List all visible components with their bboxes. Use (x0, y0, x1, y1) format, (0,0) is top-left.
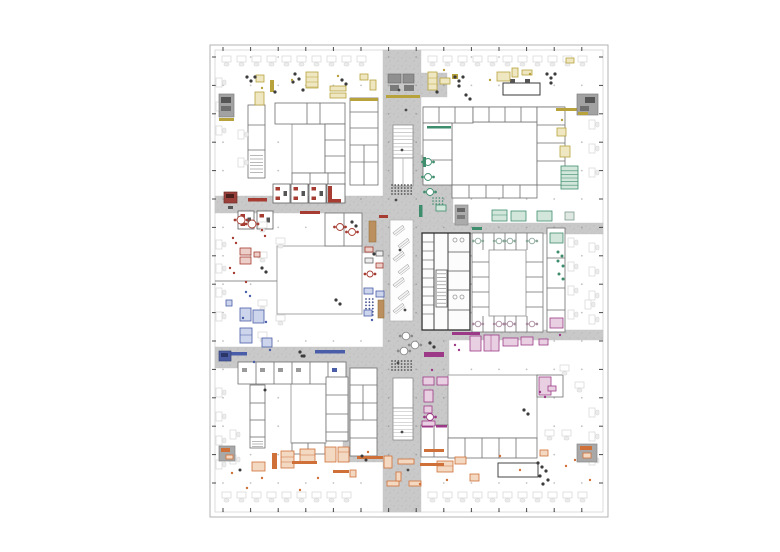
chair (260, 368, 265, 372)
ghost-desk (258, 222, 267, 228)
round-table-chair (432, 161, 435, 164)
ghost-desk (545, 430, 554, 436)
dot-table (401, 366, 403, 368)
ghost-desk (589, 315, 595, 324)
seat (376, 263, 383, 268)
plant-dots (253, 75, 256, 78)
ghost-desk-chair (237, 457, 240, 462)
dot-table (394, 184, 396, 186)
column-grid-dot (277, 454, 279, 456)
dot-table (407, 190, 409, 192)
column-grid-dot (277, 397, 279, 399)
chair (525, 79, 530, 83)
ghost-desk (548, 56, 557, 62)
ghost-desk-chair (575, 312, 578, 317)
plant-dots (264, 270, 267, 273)
booth (470, 336, 481, 351)
round-table (427, 414, 434, 421)
service-unit (583, 453, 591, 458)
round-table-chair (397, 350, 400, 353)
round-table (529, 238, 535, 244)
column-grid-dot (553, 369, 555, 371)
ghost-desk-chair (430, 63, 435, 66)
dot-table (372, 301, 374, 303)
ghost-desk (297, 492, 306, 498)
accent-dots (242, 317, 244, 319)
bench (396, 472, 401, 481)
ghost-desk-chair (592, 302, 595, 307)
dot-table (365, 301, 367, 303)
ghost-desk (327, 492, 336, 498)
pantry-unit (404, 85, 414, 91)
dot-table (401, 369, 403, 371)
dot-table (398, 369, 400, 371)
dot-table (407, 369, 409, 371)
column-grid-dot (526, 369, 528, 371)
plant-dots (401, 431, 404, 434)
dot-table (407, 187, 409, 189)
plant-dots (435, 90, 438, 93)
dot-table (394, 190, 396, 192)
column-grid-dot (277, 56, 279, 58)
ghost-desk-chair (223, 266, 226, 271)
round-table-chair (333, 226, 336, 229)
round-table (400, 347, 408, 355)
column-grid-dot (388, 170, 390, 172)
column-grid-dot (360, 482, 362, 484)
ghost-desk-chair (359, 63, 364, 66)
column-grid-dot (553, 482, 555, 484)
ghost-desk-chair (460, 499, 465, 502)
round-table-chair (481, 240, 484, 243)
accent-dots (561, 119, 563, 121)
column-grid-dot (277, 425, 279, 427)
seat (565, 212, 574, 220)
dot-table (404, 187, 406, 189)
column-grid-dot (498, 227, 500, 229)
plant-dots (298, 350, 301, 353)
ghost-desk (342, 492, 351, 498)
plant-dots (372, 252, 375, 255)
plant-dots (350, 220, 353, 223)
column-grid-dot (415, 56, 417, 58)
ghost-desk-chair (475, 499, 480, 502)
ghost-desk-chair (299, 63, 304, 66)
booth (273, 184, 290, 203)
pantry-unit (403, 74, 414, 83)
dot-table (401, 360, 403, 362)
accent-bar (272, 453, 277, 469)
column-grid-dot (360, 198, 362, 200)
ghost-desk-chair (596, 269, 599, 274)
column-grid-dot (250, 482, 252, 484)
column-grid-dot (388, 227, 390, 229)
round-table-chair (472, 323, 475, 326)
plant-dots (545, 72, 548, 75)
column-grid-dot (581, 141, 583, 143)
accent-dots (261, 87, 263, 89)
accent-bar (270, 80, 274, 92)
plant-dots (522, 408, 525, 411)
dot-table (432, 203, 434, 205)
ghost-desk-chair (344, 63, 349, 66)
dot-table (410, 360, 412, 362)
dot-table (391, 193, 393, 195)
room (423, 107, 473, 123)
ghost-desk-chair (278, 245, 283, 248)
booth-chair (312, 197, 317, 201)
ghost-desk (568, 310, 574, 319)
column-grid-dot (553, 340, 555, 342)
ghost-desk (230, 430, 236, 439)
column-grid-dot (498, 369, 500, 371)
accent-bar (424, 449, 444, 452)
ghost-desk-chair (575, 240, 578, 245)
accent-dots (559, 334, 561, 336)
column-grid-dot (388, 255, 390, 257)
room (275, 103, 345, 124)
ghost-desk (488, 56, 497, 62)
bench (369, 221, 376, 242)
round-table (349, 229, 356, 236)
ghost-desk-chair (575, 264, 578, 269)
accent-dots (269, 349, 271, 351)
round-table (425, 174, 432, 181)
dot-table (404, 366, 406, 368)
booth (309, 184, 326, 203)
seat (256, 75, 264, 82)
dot-table (407, 366, 409, 368)
accent-bar (556, 108, 578, 111)
round-table-chair (399, 335, 402, 338)
round-table-chair (526, 323, 529, 326)
sofa (328, 186, 332, 200)
ghost-desk (589, 267, 595, 276)
ghost-desk (216, 240, 222, 249)
column-grid-dot (277, 340, 279, 342)
ghost-desk (216, 78, 222, 87)
plant-dots (432, 345, 435, 348)
dot-table (435, 197, 437, 199)
table (330, 93, 346, 98)
ghost-desk-chair (596, 122, 599, 127)
ghost-desk-chair (580, 499, 585, 502)
column-grid-dot (415, 312, 417, 314)
ghost-desk (488, 492, 497, 498)
ghost-desk (589, 144, 595, 153)
ghost-desk-chair (223, 438, 226, 443)
service-unit (580, 106, 589, 111)
sofa (503, 338, 518, 346)
bench (387, 481, 399, 486)
ghost-desk (568, 238, 574, 247)
column-grid-dot (388, 198, 390, 200)
ghost-desk (276, 315, 285, 321)
dot-table (401, 187, 403, 189)
accent-bar (248, 198, 267, 202)
accent-bar (333, 470, 349, 473)
service-unit (228, 206, 233, 209)
sofa (328, 199, 341, 203)
ghost-desk (237, 56, 246, 62)
ghost-desk-chair (223, 414, 226, 419)
round-table (496, 238, 502, 244)
plant-dots (245, 75, 248, 78)
ghost-desk-chair (239, 63, 244, 66)
ghost-desk (297, 56, 306, 62)
ghost-desk (258, 332, 267, 338)
round-table (411, 341, 419, 349)
ghost-desk (267, 56, 276, 62)
column-grid-dot (581, 369, 583, 371)
sofa (521, 337, 533, 345)
floor-plan-svg (0, 0, 780, 552)
accent-dots (231, 472, 233, 474)
round-table-chair (419, 344, 422, 347)
ghost-desk (562, 430, 571, 436)
accent-dots (454, 344, 456, 346)
column-grid-dot (443, 340, 445, 342)
ghost-desk-chair (260, 307, 265, 310)
seat (365, 247, 373, 252)
plant-dots (558, 273, 561, 276)
dot-table (372, 308, 374, 310)
plant-dots (536, 461, 539, 464)
room (326, 377, 348, 441)
ghost-desk-chair (245, 132, 248, 137)
column-grid-dot (471, 56, 473, 58)
booth (291, 184, 308, 203)
column-grid-dot (443, 369, 445, 371)
accent-bar (350, 98, 378, 101)
round-table-chair (246, 219, 249, 222)
plant-dots (260, 266, 263, 269)
seat (226, 300, 232, 306)
plant-dots (301, 88, 304, 91)
ghost-desk-chair (223, 462, 226, 467)
column-grid-dot (526, 227, 528, 229)
ghost-desk-chair (505, 63, 510, 66)
table (240, 257, 251, 264)
seat (470, 474, 479, 481)
shelf (300, 449, 315, 462)
ghost-desk (216, 264, 222, 273)
ghost-desk (503, 56, 512, 62)
dot-table (410, 369, 412, 371)
ghost-desk-chair (284, 499, 289, 502)
plant-dots (405, 109, 408, 112)
dot-table (398, 190, 400, 192)
round-table (507, 238, 513, 244)
dot-table (369, 305, 371, 307)
ghost-desk (548, 492, 557, 498)
dot-table (410, 184, 412, 186)
shelf (325, 447, 336, 462)
page (0, 0, 780, 552)
column-grid-dot (360, 85, 362, 87)
table-unit (550, 318, 563, 328)
round-table (337, 224, 344, 231)
ghost-desk-chair (565, 499, 570, 502)
shelf (338, 447, 349, 462)
round-table-chair (535, 240, 538, 243)
booth (240, 308, 251, 321)
dot-table (391, 366, 393, 368)
dot-table (372, 305, 374, 307)
column-grid-dot (526, 482, 528, 484)
stair (393, 125, 413, 158)
round-table-chair (356, 231, 359, 234)
accent-bar (300, 211, 320, 214)
booth-chair (312, 187, 317, 191)
round-table-chair (526, 240, 529, 243)
plant-dots (264, 389, 267, 392)
dot-table (439, 200, 441, 202)
accent-dots (544, 396, 546, 398)
ghost-desk-chair (278, 322, 283, 325)
dot-table (401, 184, 403, 186)
round-table-chair (493, 323, 496, 326)
column-grid-dot (277, 141, 279, 143)
chair (332, 368, 337, 372)
ghost-desk-chair (329, 499, 334, 502)
dot-table (439, 203, 441, 205)
column-grid-dot (581, 255, 583, 257)
dot-table (391, 184, 393, 186)
ghost-desk-chair (223, 314, 226, 319)
ghost-desk-chair (596, 293, 599, 298)
accent-bar (423, 157, 426, 167)
column-grid-dot (581, 312, 583, 314)
accent-bar (424, 352, 444, 357)
service-unit (457, 208, 465, 212)
plant-dots (399, 249, 402, 252)
plant-dots (344, 82, 347, 85)
column-grid-dot (333, 340, 335, 342)
plant-dots (407, 469, 410, 472)
ghost-desk-chair (224, 63, 229, 66)
seat (437, 377, 448, 385)
ghost-desk (568, 286, 574, 295)
plant-dots (401, 149, 404, 152)
table-unit (550, 233, 563, 243)
round-table-chair (434, 416, 437, 419)
column-grid-dot (388, 369, 390, 371)
column-grid-dot (222, 141, 224, 143)
accent-dots (371, 319, 373, 321)
dot-table (442, 203, 444, 205)
accent-dots (246, 487, 248, 489)
plant-dots (457, 79, 460, 82)
ghost-desk (267, 492, 276, 498)
round-table-chair (423, 416, 426, 419)
ghost-desk-chair (223, 80, 226, 85)
column-grid-dot (581, 397, 583, 399)
booth (484, 335, 499, 351)
dot-table (391, 369, 393, 371)
ghost-desk-chair (550, 499, 555, 502)
column-grid-dot (222, 397, 224, 399)
room (292, 173, 345, 185)
void-mid-left (277, 246, 362, 314)
void-mid-right (489, 250, 526, 316)
column-grid-dot (471, 85, 473, 87)
pantry-unit (388, 74, 401, 83)
column-grid-dot (581, 85, 583, 87)
dot-table (398, 187, 400, 189)
column-grid-dot (553, 198, 555, 200)
ghost-desk (252, 56, 261, 62)
dot-table (398, 366, 400, 368)
ghost-desk (216, 126, 222, 135)
ghost-desk (533, 492, 542, 498)
column-grid-dot (277, 482, 279, 484)
booth-chair (276, 197, 281, 201)
service-unit (457, 215, 465, 219)
accent-dots (261, 477, 263, 479)
round-table (507, 321, 513, 327)
service-unit (221, 97, 231, 103)
plant-dots (361, 455, 364, 458)
plant-dots (549, 81, 552, 84)
column-grid-dot (443, 397, 445, 399)
column-grid-dot (415, 283, 417, 285)
plant-dots (293, 72, 296, 75)
dot-table (410, 187, 412, 189)
ghost-desk (216, 312, 222, 321)
ghost-desk (568, 262, 574, 271)
table (252, 462, 265, 471)
room (248, 105, 265, 178)
ghost-desk-chair (269, 499, 274, 502)
accent-dots (499, 455, 501, 457)
dot-table (407, 360, 409, 362)
column-grid-dot (553, 85, 555, 87)
plant-dots (297, 77, 300, 80)
round-table-chair (257, 223, 260, 226)
dot-table (404, 363, 406, 365)
ghost-desk (216, 460, 222, 469)
round-table-chair (504, 323, 507, 326)
dot-table (410, 363, 412, 365)
column-grid-dot (553, 425, 555, 427)
dot-table (365, 308, 367, 310)
accent-dots (565, 465, 567, 467)
round-table-chair (408, 344, 411, 347)
round-table-chair (434, 191, 437, 194)
dot-table (398, 193, 400, 195)
column-grid-dot (415, 85, 417, 87)
column-grid-dot (305, 227, 307, 229)
ghost-desk (533, 56, 542, 62)
ghost-desk-chair (223, 390, 226, 395)
ghost-desk-chair (223, 290, 226, 295)
plant-dots (538, 474, 541, 477)
ghost-desk (238, 158, 244, 167)
ghost-desk-chair (562, 372, 567, 375)
ghost-desk-chair (550, 63, 555, 66)
plant-dots (338, 302, 341, 305)
plant-dots (239, 469, 242, 472)
ghost-desk (222, 56, 231, 62)
ghost-desk-chair (520, 63, 525, 66)
room (250, 385, 265, 448)
ghost-desk-chair (535, 499, 540, 502)
seat (557, 128, 566, 136)
plant-dots (397, 362, 400, 365)
column-grid-dot (415, 454, 417, 456)
ghost-desk (473, 56, 482, 62)
